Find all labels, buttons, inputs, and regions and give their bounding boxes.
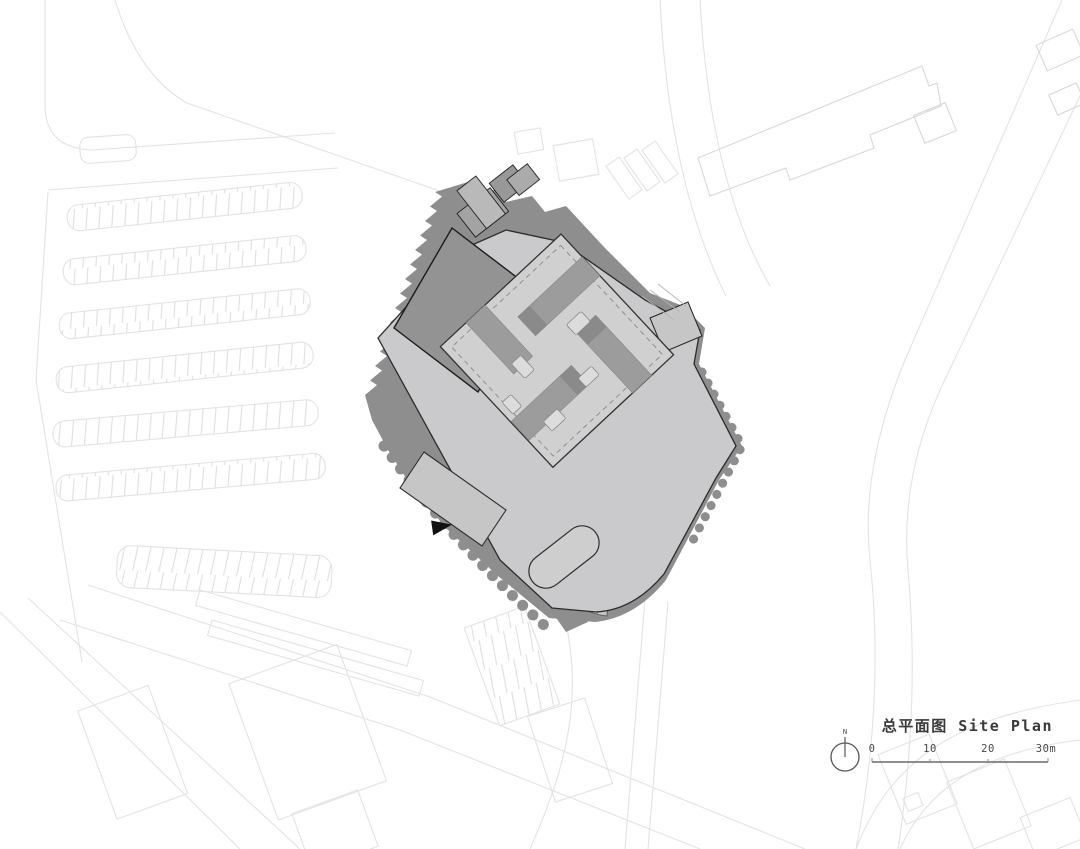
context-building: [878, 734, 957, 824]
road-bottomleft-1: [88, 585, 805, 849]
road-north-1: [660, 0, 726, 296]
parking-row: [58, 288, 311, 340]
context-building: [947, 759, 1031, 849]
context-stall: [642, 141, 678, 183]
road-southeast-curve2: [900, 740, 1080, 849]
context-building: [1036, 29, 1080, 71]
parking-row: [55, 341, 314, 394]
context-stall: [606, 157, 642, 199]
scale-label-20: 20: [981, 743, 995, 755]
scale-bar: 0 10 20 30m: [869, 743, 1057, 762]
context-building: [229, 645, 387, 821]
north-arrow: N: [831, 728, 859, 771]
road-south-3: [648, 602, 668, 849]
building-complex: [365, 146, 742, 632]
road-bottomleft-2: [60, 620, 700, 849]
scale-label-10: 10: [923, 743, 937, 755]
road-bottomleft-3: [0, 612, 240, 849]
context-stall: [624, 149, 660, 191]
parking-row: [116, 545, 333, 598]
scale-label-30: 30m: [1036, 743, 1056, 755]
context-building: [1049, 83, 1080, 115]
context-building: [903, 793, 923, 812]
context-building: [514, 128, 543, 154]
north-label: N: [843, 728, 847, 736]
context-building: [1020, 797, 1080, 849]
context-longslab: [698, 66, 941, 196]
road-topleft-outer: [45, 0, 335, 150]
site-plan-canvas: 总平面图 Site Plan N 0 10 20 30m: [0, 0, 1080, 849]
context-strip: [196, 590, 412, 666]
titleblock: 总平面图 Site Plan N 0 10 20 30m: [831, 717, 1056, 771]
parking-lot-west: [52, 181, 333, 598]
context-building: [292, 790, 378, 849]
parking-row: [55, 452, 326, 501]
context-building: [553, 139, 599, 181]
road-south-2: [625, 598, 645, 849]
parking-row: [62, 234, 307, 285]
drawing-sheet: 总平面图 Site Plan N 0 10 20 30m: [0, 0, 1080, 849]
road-bottomleft-4: [28, 598, 300, 849]
road-south-1: [530, 600, 572, 849]
context-building: [528, 698, 613, 802]
drawing-title: 总平面图 Site Plan: [882, 717, 1053, 735]
context-building: [78, 685, 188, 819]
parking-row: [66, 181, 303, 232]
parking-row: [52, 399, 319, 448]
scale-label-0: 0: [869, 743, 876, 755]
